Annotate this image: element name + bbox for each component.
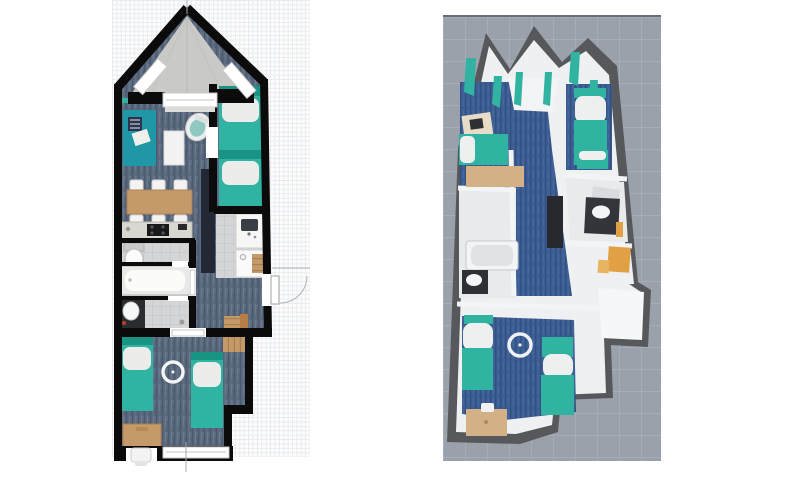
screenshot-stage (0, 0, 800, 483)
bed-left-3d (462, 315, 493, 390)
floor-plan-3d[interactable] (447, 26, 651, 444)
daybed (459, 134, 508, 165)
shower-drain-left (180, 320, 185, 325)
orange-towel (616, 222, 623, 237)
floor-plan-2d[interactable] (114, 0, 310, 472)
vanity-left (462, 270, 488, 294)
twin-bed-b (577, 150, 608, 169)
sideboard (466, 166, 524, 187)
bed-right-3d (541, 337, 574, 415)
bathtub (120, 266, 190, 295)
coffee-mat (164, 131, 184, 165)
area-rug (123, 110, 156, 166)
plans-canvas (0, 0, 800, 483)
single-bed-4 (191, 352, 223, 428)
shower-tray (236, 250, 264, 277)
single-bed-2 (219, 150, 262, 206)
washbasin-vanity (119, 300, 145, 328)
entrance-porch (598, 288, 644, 340)
bathtub-3d (466, 241, 518, 270)
single-bed-3 (121, 337, 153, 411)
dining-set (127, 180, 192, 226)
desk-chair (131, 448, 151, 466)
kitchen-counter (117, 222, 192, 239)
doormat (240, 314, 248, 330)
tall-wardrobe-3d (547, 196, 563, 248)
sink-counter (236, 214, 264, 248)
